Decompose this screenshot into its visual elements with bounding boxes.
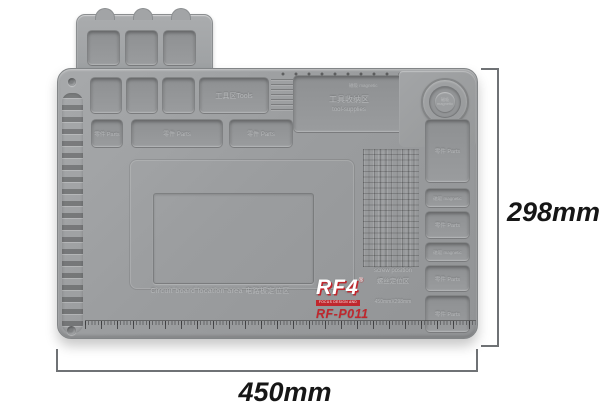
model-number-text: RF-P011: [316, 307, 426, 321]
top-tray-compartment: [87, 30, 120, 66]
dimension-cap-bottom: [481, 345, 499, 347]
top-tray-compartment: [125, 30, 158, 66]
tool-compartment: [90, 77, 122, 114]
parts-tray: 零件 Parts: [229, 119, 293, 148]
tool-compartment: [162, 77, 195, 114]
tool-supplies-label-cn: 工具收纳区: [294, 94, 404, 105]
left-ridge-strip: [62, 93, 83, 333]
tray-clip-icon: [171, 8, 191, 20]
registered-mark-icon: ®: [359, 278, 363, 284]
parts-label: 零件 Parts: [94, 130, 119, 138]
magnetic-tag-label: 磁吸 magnetic: [349, 83, 378, 89]
tool-supplies-label-en: tool-supplies: [294, 107, 404, 113]
tool-compartment: [126, 77, 158, 114]
product-photo-canvas: 工具区Tools 磁吸 magnetic 工具收纳区 tool-supplies…: [0, 0, 600, 420]
tools-area-label: 工具区Tools: [215, 91, 252, 101]
screw-hole-icon: [67, 326, 76, 335]
magnetic-label: 磁吸 magnetic: [433, 196, 462, 201]
rf4-logo-text: RF4: [316, 276, 359, 299]
magnetic-label-en: magnetic: [437, 102, 453, 107]
parts-label: 零件 Parts: [435, 221, 460, 229]
parts-label: 零件 Parts: [435, 275, 460, 283]
magnetic-circle-icon: 磁吸 magnetic: [435, 92, 455, 112]
screw-hole-icon: [68, 78, 76, 86]
soldering-mat: 工具区Tools 磁吸 magnetic 工具收纳区 tool-supplies…: [57, 68, 478, 339]
detachable-top-tray: [76, 14, 213, 74]
tray-clip-icon: [133, 8, 153, 20]
top-tray-compartment: [163, 30, 196, 66]
parts-label: 零件 Parts: [435, 310, 460, 318]
parts-label: 零件 Parts: [163, 129, 191, 138]
height-dimension-label: 298mm: [507, 197, 600, 228]
parts-tray: 零件 Parts: [131, 119, 223, 148]
magnetic-label: 磁吸 magnetic: [433, 250, 462, 255]
right-magnetic-tray: 磁吸 magnetic: [425, 242, 470, 262]
parts-tray: 零件 Parts: [91, 119, 123, 148]
screw-position-label-en: screw position: [353, 268, 433, 274]
ruler-scale: [85, 320, 476, 334]
tray-clip-icon: [95, 8, 115, 20]
right-magnetic-tray: 磁吸 magnetic: [425, 188, 470, 208]
parts-label: 零件 Parts: [435, 147, 460, 155]
brand-tagline-bar: FOCUS DESIGN AND CONCEPT: [316, 300, 360, 306]
dimension-cap-right: [476, 349, 478, 372]
rib-texture: [271, 79, 293, 112]
brand-logo: RF4® FOCUS DESIGN AND CONCEPT RF-P011: [316, 278, 426, 321]
parts-label: 零件 Parts: [247, 129, 275, 138]
dimension-cap-left: [56, 349, 58, 372]
circuit-board-area-inner: [153, 193, 314, 284]
right-parts-tray: 零件 Parts: [425, 119, 470, 183]
tools-area-tray: 工具区Tools: [199, 77, 269, 114]
screw-position-grid: [363, 149, 419, 267]
right-parts-tray: 零件 Parts: [425, 211, 470, 239]
dimension-line-height: [497, 69, 499, 347]
width-dimension-label: 450mm: [200, 377, 370, 408]
dimension-line-width: [56, 370, 478, 372]
